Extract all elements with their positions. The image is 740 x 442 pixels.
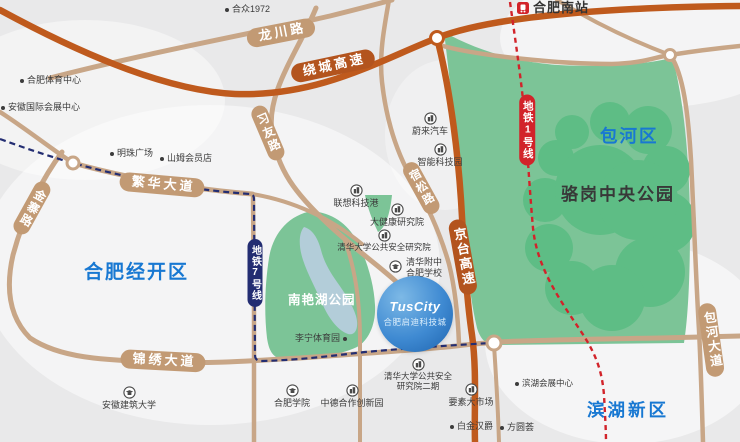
tuscity-chinese-name: 合肥启迪科技城 xyxy=(383,316,446,328)
metro-7-badge: 地铁7号线 xyxy=(248,239,263,307)
building-icon xyxy=(378,229,391,242)
poi-lining-sports-park: 李宁体育园 xyxy=(295,334,347,344)
nanyanhu-park-label: 南艳湖公园 xyxy=(288,289,356,308)
poi-dot-icon xyxy=(225,8,229,12)
poi-nio: 蔚来汽车 xyxy=(409,112,451,136)
tuscity-project-marker: TusCity 合肥启迪科技城 xyxy=(377,276,453,352)
train-station-icon xyxy=(517,2,529,14)
poi-hezhong1972: 合众1972 xyxy=(225,5,270,15)
poi-intl-expo-center: 安徽国际会展中心 xyxy=(1,103,80,113)
poi-fangyuanhui: 方圆荟 xyxy=(500,423,534,433)
luogang-park-label: 骆岗中央公园 xyxy=(561,180,675,205)
poi-smart-tech-park: 智能科技园 xyxy=(415,143,465,167)
poi-tsinghua-high-school xyxy=(389,260,402,278)
building-icon xyxy=(350,184,363,197)
poi-health-institute: 大健康研究院 xyxy=(368,203,426,227)
poi-dot-icon xyxy=(1,106,5,110)
poi-mingzhu-plaza: 明珠广场 xyxy=(110,149,153,159)
school-icon xyxy=(286,384,299,397)
poi-dot-icon xyxy=(20,79,24,83)
building-icon xyxy=(465,383,478,396)
school-icon xyxy=(389,260,402,273)
poi-sino-german-park: 中德合作创新园 xyxy=(318,384,386,408)
poi-dot-icon xyxy=(515,382,519,386)
poi-dot-icon xyxy=(343,337,347,341)
poi-dot-icon xyxy=(450,425,454,429)
metro-1-badge: 地铁1号线 xyxy=(519,95,535,166)
location-map: 龙川路 绕城高速 习友路 繁华大道 金寨路 锦绣大道 宿松路 京台高速 包河大道… xyxy=(0,0,740,442)
building-icon xyxy=(434,143,447,156)
station-label: 合肥南站 xyxy=(533,0,589,16)
district-label-binhu: 滨湖新区 xyxy=(587,397,669,422)
poi-dot-icon xyxy=(160,157,164,161)
poi-baijin-hanjue: 白金汉爵 xyxy=(450,422,493,432)
district-label-baohe: 包河区 xyxy=(600,123,659,148)
poi-dot-icon xyxy=(500,426,504,430)
poi-hefei-university: 合肥学院 xyxy=(272,384,312,408)
poi-tsinghua-safety-institute: 清华大学公共安全研究院 xyxy=(334,229,434,253)
building-icon xyxy=(412,358,425,371)
building-icon xyxy=(391,203,404,216)
district-label-jingkai: 合肥经开区 xyxy=(84,257,189,284)
building-icon xyxy=(424,112,437,125)
poi-sports-center: 合肥体育中心 xyxy=(20,76,81,86)
poi-dot-icon xyxy=(110,152,114,156)
hefei-south-station: 合肥南站 xyxy=(517,2,589,16)
poi-binhu-expo-center: 滨湖会展中心 xyxy=(515,379,573,388)
building-icon xyxy=(346,384,359,397)
poi-sams-club: 山姆会员店 xyxy=(160,154,212,164)
tuscity-brand: TusCity xyxy=(390,300,441,314)
poi-factor-market: 要素大市场 xyxy=(446,383,496,407)
poi-anhui-jianzhu-university: 安徽建筑大学 xyxy=(100,386,158,410)
school-icon xyxy=(123,386,136,399)
